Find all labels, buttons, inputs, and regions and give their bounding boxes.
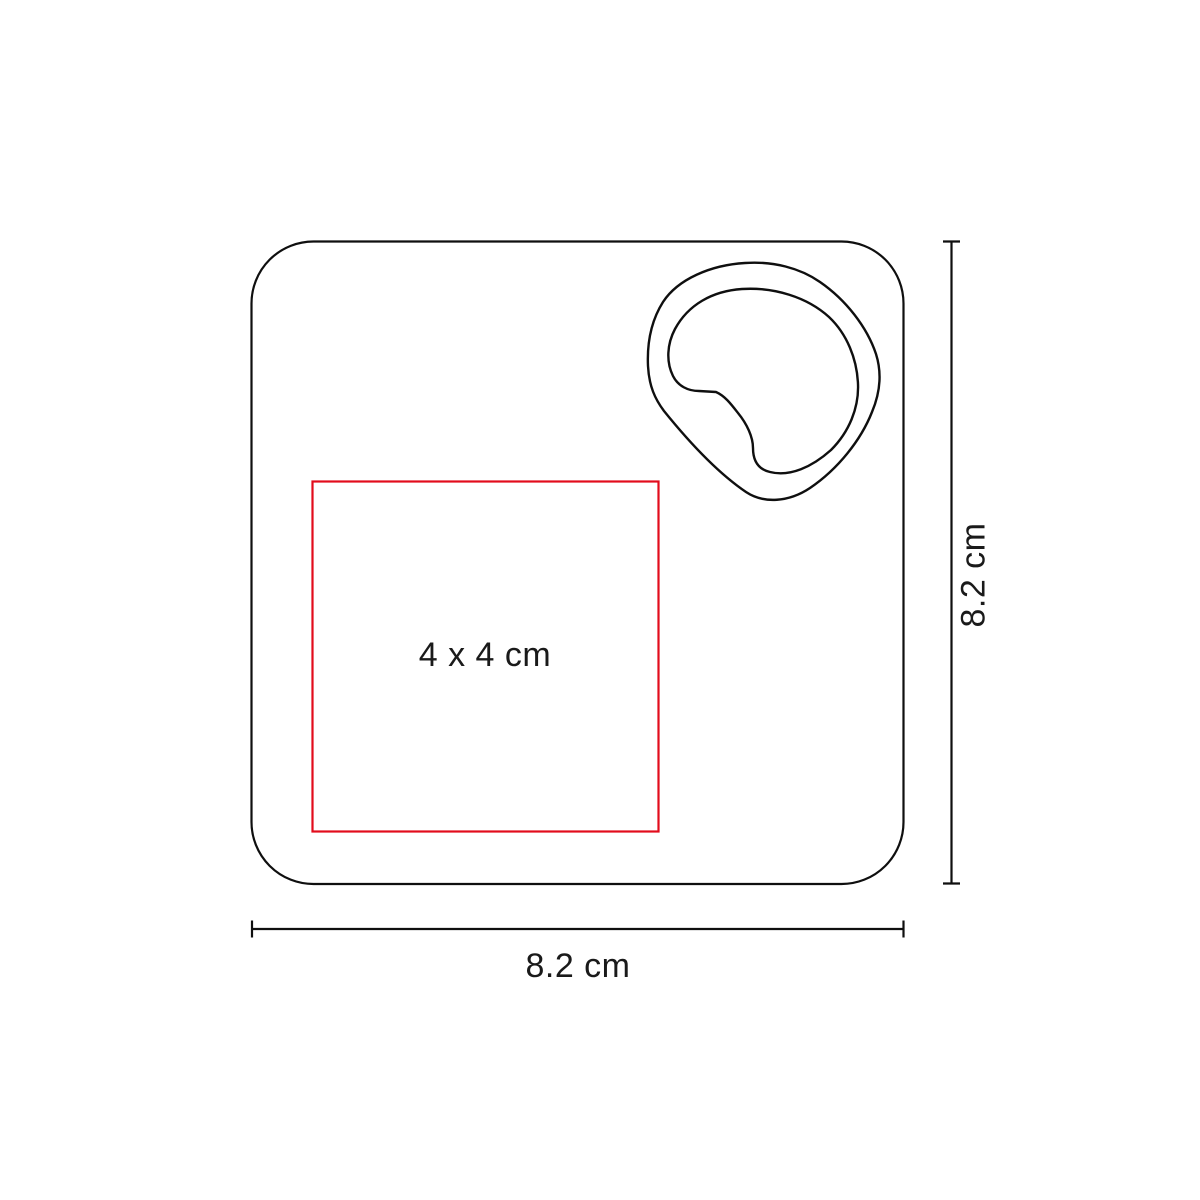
width-dimension-label: 8.2 cm <box>252 947 904 986</box>
print-area-label: 4 x 4 cm <box>312 481 658 831</box>
bottle-opener-outer-contour <box>648 263 880 500</box>
bottle-opener-inner-contour <box>668 289 858 474</box>
height-dimension-label: 8.2 cm <box>954 522 993 627</box>
width-dimension-line <box>252 921 904 938</box>
product-dimension-diagram: 4 x 4 cm 8.2 cm 8.2 cm <box>0 0 1200 1200</box>
